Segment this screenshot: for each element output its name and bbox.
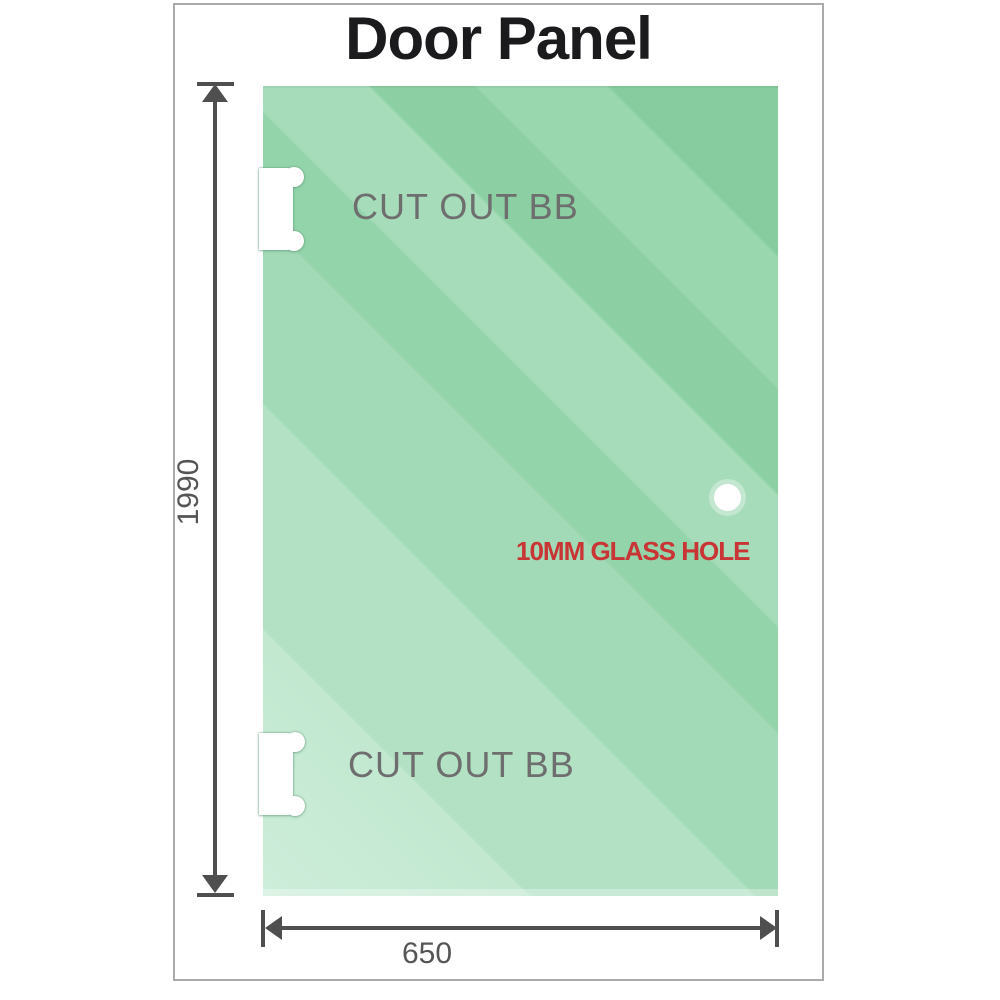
door-panel-diagram: Door Panel 1990 650 CUT OUT BB CUT OUT B… xyxy=(0,0,1000,1000)
cutout-top xyxy=(259,163,309,255)
cutout-bottom-label: CUT OUT BB xyxy=(348,744,575,786)
cutout-bottom-hole-lower xyxy=(285,796,305,816)
page-title: Door Panel xyxy=(173,8,824,70)
width-dim-right-tick xyxy=(775,910,779,947)
width-dim-line xyxy=(280,926,762,930)
arrow-down-icon xyxy=(202,875,228,893)
cutout-top-hole-upper xyxy=(284,167,304,187)
height-dim-label: 1990 xyxy=(172,452,204,532)
width-dim-label: 650 xyxy=(387,937,467,971)
cutout-bottom xyxy=(259,728,309,820)
height-dim-bottom-tick xyxy=(197,893,234,897)
cutout-top-label: CUT OUT BB xyxy=(352,186,579,228)
cutout-bottom-hole-upper xyxy=(285,732,305,752)
glass-hole-label: 10MM GLASS HOLE xyxy=(516,536,749,567)
height-dim-line xyxy=(213,98,217,879)
cutout-top-hole-lower xyxy=(284,231,304,251)
glass-hole xyxy=(714,484,741,511)
